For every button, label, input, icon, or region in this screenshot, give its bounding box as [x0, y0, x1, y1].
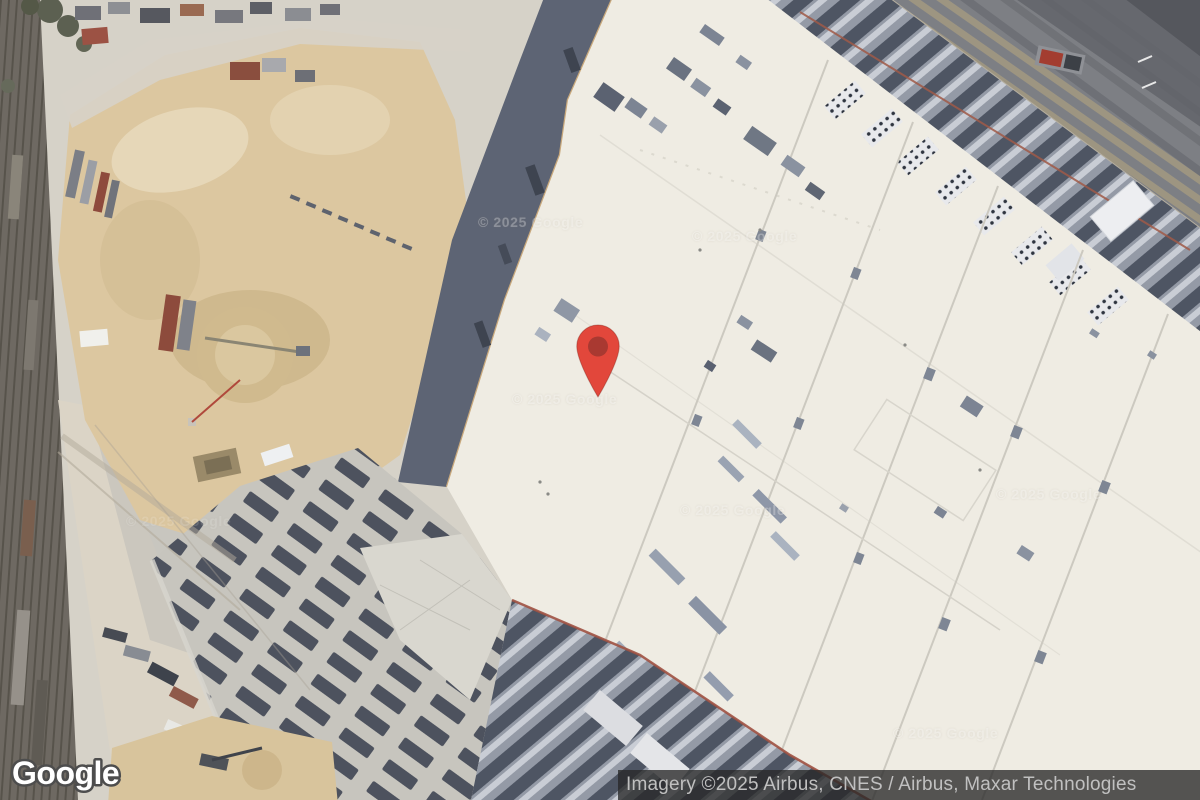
map-canvas[interactable]: © 2025 Google © 2025 Google © 2025 Googl… [0, 0, 1200, 800]
pin-glyph [573, 323, 623, 401]
attribution-bar: Imagery ©2025 Airbus, CNES / Airbus, Max… [618, 770, 1200, 800]
google-logo[interactable]: Google [8, 752, 148, 794]
google-logo-text: Google [12, 755, 119, 791]
location-pin-icon[interactable] [573, 323, 623, 406]
attribution-text: Imagery ©2025 Airbus, CNES / Airbus, Max… [626, 774, 1136, 795]
